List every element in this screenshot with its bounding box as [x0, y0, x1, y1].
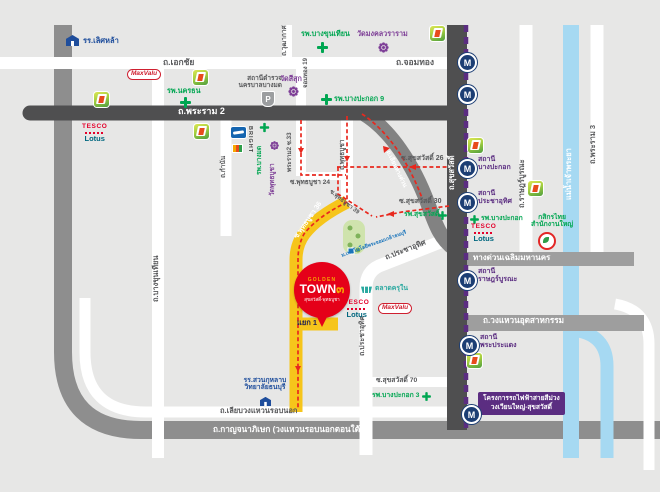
maxvalu-badge: MaxValu	[378, 303, 412, 314]
suankularb-school-label: รร.สวนกุหลาบ วิทยาลัยธนบุรี	[236, 377, 294, 391]
temple-icon	[378, 42, 389, 53]
road-label-rama3: ถ.พระราม 3	[589, 125, 597, 164]
station-prefix: สถานี	[478, 156, 511, 164]
metro-station-icon-prachauthit: M	[458, 193, 477, 212]
metro-letter: M	[468, 410, 476, 420]
hospital-cross-icon	[180, 97, 191, 108]
purple-line-project-box: โครงการรถไฟฟ้าสายสีม่วง วงเวียนใหญ่-สุขส…	[478, 392, 565, 415]
station-label-prachauthit: สถานี ประชาอุทิศ	[478, 190, 512, 206]
road-label-ekkachai: ถ.เอกชัย	[163, 58, 194, 67]
metro-station-icon-purple-line: M	[462, 405, 481, 424]
road-label-phutthabucha: ถ.พุทธบูชา	[340, 140, 347, 170]
bright-sign-icon	[231, 127, 246, 138]
road-label-phutthabucha24: ซ.พุทธบูชา 24	[290, 180, 330, 187]
mongkhon-temple-label: วัดมงคลวราราม	[357, 30, 408, 38]
purple-line-project-line2: วงเวียนใหญ่-สุขสวัสดิ์	[483, 404, 560, 413]
bangmod-police-label: สถานีตำรวจ นครบาลบางมด	[226, 76, 282, 90]
station-prefix: สถานี	[478, 190, 512, 198]
road-label-ratburana: ถ.ราษฎร์บูรณะ	[518, 159, 526, 208]
nakhonthon-hospital-label: รพ.นครธน	[167, 87, 200, 95]
metro-station-icon-bangpakok: M	[458, 159, 477, 178]
golden-town-pin: GOLDEN TOWN๓ สุขสวัสดิ์-พุทธบูชา	[294, 262, 350, 318]
krunai-market-label: ตลาดครุใน	[375, 285, 408, 292]
road-label-expressway: ทางด่วนเฉลิมมหานคร	[473, 254, 550, 262]
kbank-line2: สำนักงานใหญ่	[531, 221, 573, 228]
road-label-rama2: ถ.พระราม 2	[178, 107, 225, 116]
lotus-label: Lotus	[82, 135, 107, 143]
road-label-wutthakat: ถ.วุฒากาศ	[282, 25, 289, 56]
metro-station-icon-ratburana: M	[458, 271, 477, 290]
bright-label: BRIGHT	[246, 126, 252, 153]
bangpakok3-hospital-label: รพ.บางปะกอก 3	[372, 392, 419, 399]
station-label-bangpakok: สถานี บางปะกอก	[478, 156, 511, 172]
station-name: พระประแดง	[480, 342, 517, 350]
metro-letter: M	[464, 90, 472, 100]
seven-eleven-icon	[467, 353, 482, 368]
river-label-chaophraya: แม่น้ำเจ้าพระยา	[565, 148, 573, 200]
maxvalu-badge: MaxValu	[127, 69, 161, 80]
road-label-suksawat26: ซ.สุขสวัสดิ์ 26	[401, 155, 444, 162]
seven-eleven-icon	[193, 70, 208, 85]
police-label-line2: นครบาลบางมด	[226, 83, 282, 90]
kbank-hq-label: กสิกรไทย สำนักงานใหญ่	[531, 214, 573, 228]
colored-sign-icon	[233, 145, 242, 152]
road-label-suksawat: ถ.สุขสวัสดิ์	[448, 155, 456, 190]
tesco-lotus-badge: TESCO Lotus	[344, 300, 369, 318]
golden-town-brand-name: TOWN๓	[300, 283, 345, 296]
bangmod-hospital-label: รพ.บางมด	[257, 146, 264, 175]
lotus-label: Lotus	[344, 311, 369, 319]
metro-letter: M	[466, 341, 474, 351]
tesco-label: TESCO	[471, 224, 496, 231]
tesco-label: TESCO	[344, 300, 369, 307]
metro-station-icon: M	[458, 53, 477, 72]
police-station-icon: P	[261, 91, 275, 107]
sisuk-temple-label: วัดสีสุก	[280, 75, 302, 83]
metro-letter: M	[464, 198, 472, 208]
suankularb-line2: วิทยาลัยธนบุรี	[236, 384, 294, 391]
seven-eleven-icon	[430, 26, 445, 41]
golden-town-pin-tail	[316, 315, 328, 327]
hospital-cross-icon	[438, 211, 447, 220]
bangpakok-hospital-label: รพ.บางปะกอก	[481, 215, 523, 222]
kbank-icon	[538, 232, 556, 250]
hospital-cross-icon	[317, 42, 328, 53]
metro-letter: M	[464, 276, 472, 286]
seven-eleven-icon	[94, 92, 109, 107]
road-label-chomthong: ถ.จอมทอง	[396, 58, 434, 67]
purple-line-project-line1: โครงการรถไฟฟ้าสายสีม่วง	[483, 395, 560, 404]
road-label-chomthong19: จอมทอง 19	[303, 58, 309, 88]
golden-town-number: ๓	[336, 282, 344, 296]
station-name: ราษฎร์บูรณะ	[478, 276, 517, 284]
metro-letter: M	[464, 164, 472, 174]
lertlah-school-label: รร.เลิศหล้า	[83, 37, 119, 45]
station-name: ประชาอุทิศ	[478, 198, 512, 206]
road-label-bangkhunthian: ถ.บางขุนเทียน	[152, 255, 160, 302]
bangpakok9-hospital-label: รพ.บางปะกอก 9	[334, 95, 384, 103]
station-label-phrapradaeng: สถานี พระประแดง	[480, 334, 517, 350]
tesco-label: TESCO	[82, 124, 107, 131]
phutthabucha-temple-label: วัดพุทธบูชา	[270, 163, 277, 196]
seven-eleven-icon	[468, 138, 483, 153]
temple-icon	[288, 86, 299, 97]
station-label-ratburana: สถานี ราษฎร์บูรณะ	[478, 268, 517, 284]
road-label-rama2-soi33: พระราม2 ซ.33	[287, 132, 294, 172]
road-network	[0, 0, 660, 492]
hospital-cross-icon	[321, 94, 332, 105]
seven-eleven-icon	[194, 124, 209, 139]
map-canvas: ถ.เอกชัย ถ.จอมทอง ถ.พระราม 2 ถ.วุฒากาศ จ…	[0, 0, 660, 492]
police-letter: P	[265, 95, 270, 104]
metro-station-icon: M	[458, 85, 477, 104]
tesco-lotus-badge: TESCO Lotus	[471, 224, 496, 242]
temple-icon	[270, 141, 279, 150]
junction-label-yaek1: แยก 1	[297, 319, 317, 327]
golden-town-name: TOWN	[300, 282, 336, 296]
road-label-suksawat30: ซ.สุขสวัสดิ์ 30	[399, 198, 442, 205]
hospital-cross-icon	[422, 392, 431, 401]
station-name: บางปะกอก	[478, 164, 511, 172]
road-label-liap-wongwaen: ถ.เลียบวงแหวนรอบนอก	[220, 407, 297, 415]
suksawat-hospital-label: รพ.สุขสวัสดิ์	[404, 211, 439, 218]
metro-station-icon-phrapradaeng: M	[460, 336, 479, 355]
road-label-kamnan: ถ.กำนัน	[221, 156, 228, 178]
road-label-suksawat70: ซ.สุขสวัสดิ์ 70	[376, 377, 417, 384]
station-prefix: สถานี	[478, 268, 517, 276]
lotus-label: Lotus	[471, 235, 496, 243]
tesco-lotus-badge: TESCO Lotus	[82, 124, 107, 142]
golden-town-subtitle: สุขสวัสดิ์-พุทธบูชา	[304, 296, 339, 303]
road-label-prachauthit-vertical: ถ.ประชาอุทิศ	[359, 316, 366, 356]
seven-eleven-icon	[528, 181, 543, 196]
road-label-industrial-ring: ถ.วงแหวนอุตสาหกรรม	[483, 317, 564, 326]
hospital-cross-icon	[260, 123, 269, 132]
bangkhunthian-hospital-label: รพ.บางขุนเทียน	[301, 30, 350, 38]
station-prefix: สถานี	[480, 334, 517, 342]
road-label-kanchanaphisek: ถ.กาญจนาภิเษก (วงแหวนรอบนอกตอนใต้)	[213, 426, 363, 435]
metro-letter: M	[464, 58, 472, 68]
